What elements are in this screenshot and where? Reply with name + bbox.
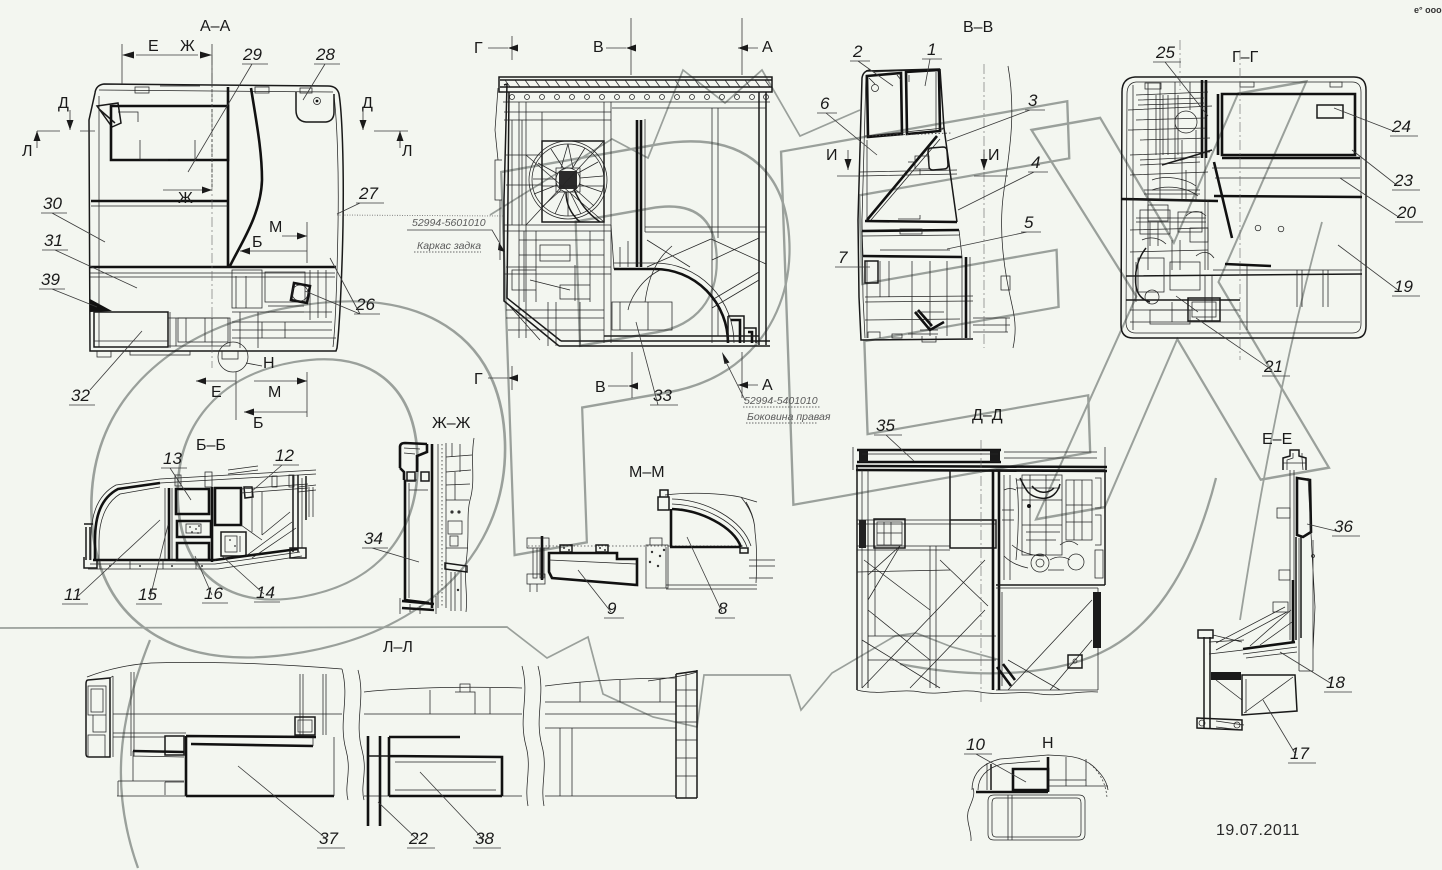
svg-text:А–А: А–А: [200, 18, 231, 35]
svg-text:52994-5401010: 52994-5401010: [744, 395, 818, 407]
svg-text:22: 22: [408, 829, 428, 848]
svg-text:29: 29: [242, 45, 262, 64]
svg-text:Л: Л: [22, 143, 33, 160]
svg-text:13: 13: [163, 449, 182, 468]
svg-text:1: 1: [927, 40, 936, 59]
svg-text:6: 6: [820, 94, 830, 113]
svg-text:В: В: [595, 379, 606, 396]
svg-text:В: В: [593, 39, 604, 56]
svg-text:27: 27: [358, 184, 378, 203]
svg-text:12: 12: [275, 446, 294, 465]
svg-text:36: 36: [1334, 517, 1353, 536]
svg-text:8: 8: [718, 599, 728, 618]
svg-text:Д: Д: [58, 95, 69, 112]
svg-text:Б: Б: [252, 234, 263, 251]
svg-text:Ж: Ж: [180, 38, 195, 55]
svg-text:А: А: [762, 377, 773, 394]
svg-text:19: 19: [1394, 277, 1413, 296]
svg-text:5: 5: [1024, 213, 1034, 232]
svg-text:25: 25: [1155, 43, 1175, 62]
svg-text:14: 14: [256, 583, 275, 602]
svg-text:М: М: [269, 219, 282, 236]
svg-text:Каркас задка: Каркас задка: [417, 240, 481, 252]
svg-text:Б–Б: Б–Б: [196, 437, 226, 454]
svg-text:11: 11: [64, 585, 82, 604]
svg-text:37: 37: [319, 829, 338, 848]
svg-text:2: 2: [852, 42, 863, 61]
svg-text:7: 7: [838, 248, 848, 267]
svg-text:Е: Е: [148, 38, 159, 55]
svg-text:19.07.2011: 19.07.2011: [1216, 822, 1300, 839]
svg-text:Х: Х: [1014, 0, 1339, 640]
svg-text:М–М: М–М: [629, 464, 665, 481]
svg-text:28: 28: [315, 45, 335, 64]
svg-text:3: 3: [1028, 91, 1038, 110]
svg-text:Г: Г: [474, 371, 483, 388]
svg-text:52994-5601010: 52994-5601010: [412, 217, 486, 229]
svg-text:В–В: В–В: [963, 19, 993, 36]
svg-text:М: М: [268, 384, 281, 401]
svg-text:Ж–Ж: Ж–Ж: [432, 415, 471, 432]
svg-text:Е–Е: Е–Е: [1262, 431, 1292, 448]
svg-text:А: А: [762, 39, 773, 56]
svg-text:24: 24: [1391, 117, 1411, 136]
svg-text:Г–Г: Г–Г: [1232, 49, 1259, 66]
svg-text:15: 15: [138, 585, 157, 604]
svg-text:32: 32: [71, 386, 90, 405]
svg-text:23: 23: [1393, 171, 1413, 190]
svg-text:е° ооо: е° ооо: [1414, 5, 1442, 15]
svg-text:16: 16: [204, 584, 223, 603]
svg-text:Л–Л: Л–Л: [383, 639, 413, 656]
svg-text:17: 17: [1290, 744, 1309, 763]
svg-text:Е: Е: [211, 384, 222, 401]
svg-text:21: 21: [1263, 357, 1283, 376]
svg-text:Боковина правая: Боковина правая: [747, 411, 831, 423]
svg-text:Г: Г: [474, 40, 483, 57]
svg-text:34: 34: [364, 529, 383, 548]
svg-text:35: 35: [876, 416, 895, 435]
svg-text:31: 31: [44, 231, 63, 250]
svg-text:Л: Л: [402, 143, 413, 160]
svg-text:Н: Н: [1042, 735, 1054, 752]
svg-text:39: 39: [41, 270, 60, 289]
svg-text:И: И: [988, 147, 1000, 164]
svg-text:38: 38: [475, 829, 494, 848]
svg-text:И: И: [826, 147, 838, 164]
svg-text:Д: Д: [362, 95, 373, 112]
svg-text:30: 30: [43, 194, 62, 213]
svg-text:Н: Н: [263, 355, 275, 372]
svg-text:Б: Б: [253, 415, 264, 432]
svg-text:4: 4: [1031, 153, 1040, 172]
svg-text:20: 20: [1396, 203, 1416, 222]
svg-text:33: 33: [653, 386, 672, 405]
svg-text:Ж: Ж: [178, 190, 193, 207]
svg-text:Д–Д: Д–Д: [972, 407, 1003, 424]
svg-text:10: 10: [966, 735, 985, 754]
